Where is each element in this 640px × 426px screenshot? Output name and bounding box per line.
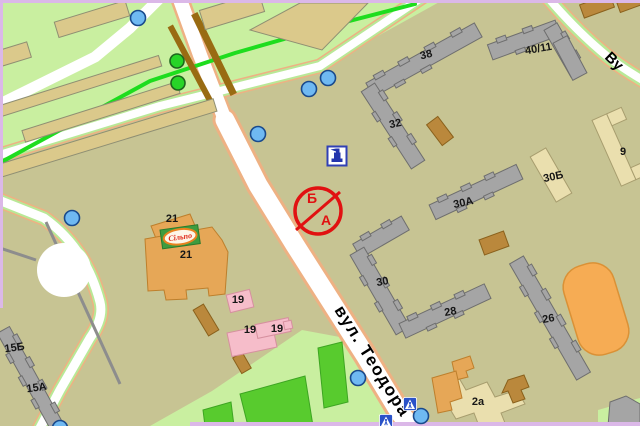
pedestrian-crossing-icon[interactable]: [404, 398, 417, 411]
fountain-circle: [37, 243, 91, 297]
label-30: 30: [375, 275, 389, 289]
poi-marker[interactable]: [131, 11, 146, 26]
tree-marker[interactable]: [170, 54, 184, 68]
label-26: 26: [541, 312, 555, 326]
poi-marker[interactable]: [65, 211, 80, 226]
label-19-mid: 19: [244, 324, 256, 336]
label-28: 28: [443, 305, 457, 319]
no-entry-letter-bottom: А: [321, 212, 331, 228]
label-2a: 2а: [472, 396, 485, 408]
label-32: 32: [388, 117, 402, 131]
label-19-top: 19: [232, 294, 244, 306]
poi-marker[interactable]: [351, 371, 366, 386]
label-21-top: 21: [166, 213, 178, 225]
tree-marker[interactable]: [171, 76, 185, 90]
poi-marker[interactable]: [302, 82, 317, 97]
monument-icon[interactable]: [328, 147, 347, 166]
map-canvas[interactable]: Сільпо 38 32 40/11 30А 30Б 9 30 28 26 15…: [0, 0, 640, 426]
poi-marker[interactable]: [251, 127, 266, 142]
label-9: 9: [620, 146, 626, 158]
no-entry-letter-top: Б: [307, 190, 317, 206]
label-21-main: 21: [180, 249, 192, 261]
label-19-right: 19: [271, 323, 283, 335]
poi-marker[interactable]: [321, 71, 336, 86]
pedestrian-crossing-icon[interactable]: [380, 415, 393, 426]
